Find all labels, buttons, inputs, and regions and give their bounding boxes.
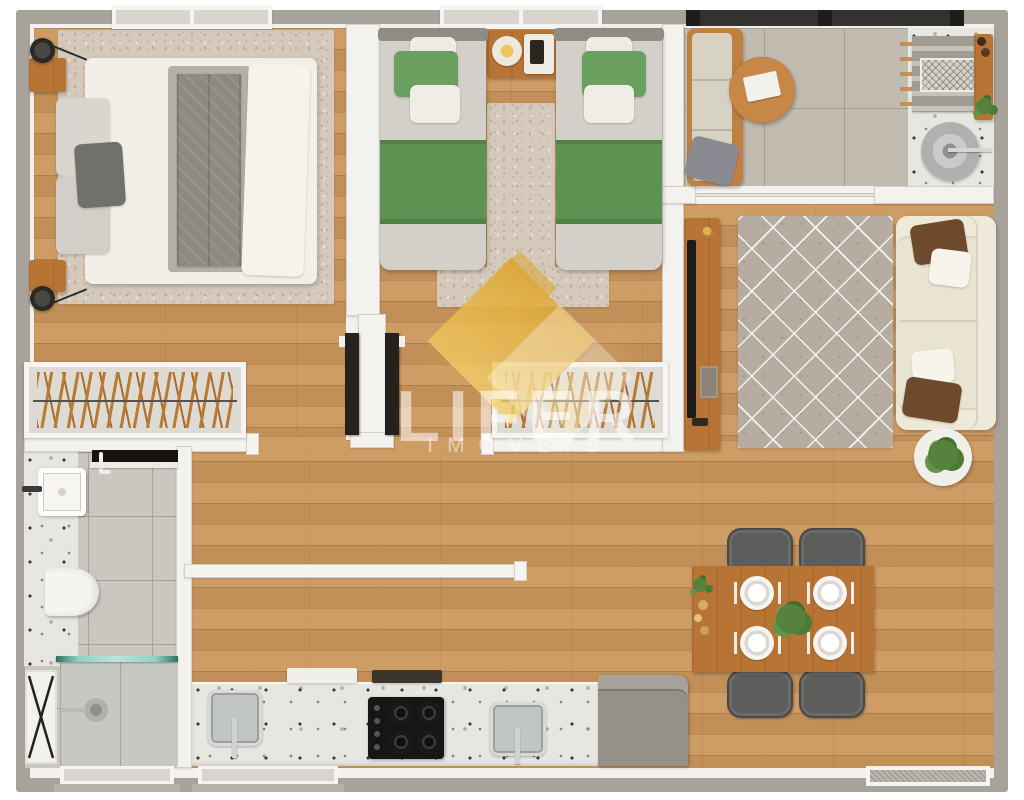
drying-rack-mesh	[920, 58, 980, 92]
refrigerator	[598, 675, 688, 766]
balcony-glass-guardrail	[686, 10, 964, 26]
cutlery	[851, 582, 854, 604]
counter-bottle	[977, 37, 986, 46]
cooktop-knob	[374, 744, 380, 750]
rack-peg	[900, 72, 913, 76]
place-setting	[813, 626, 847, 660]
window-pane	[202, 769, 334, 781]
rack-peg	[900, 102, 913, 106]
wall-balcony-living-right	[874, 186, 994, 204]
rack-peg	[900, 42, 913, 46]
bathroom-door-leaf	[92, 450, 178, 462]
window-sill	[192, 784, 344, 792]
washbasin-faucet	[22, 486, 42, 492]
x-frame-icon	[25, 670, 57, 764]
counter-plant	[976, 98, 992, 114]
counter-bottle	[981, 48, 990, 57]
window-bedroom-twin	[440, 5, 602, 29]
pillow-white	[584, 85, 634, 123]
window-kitchen	[198, 764, 338, 786]
sofa-pillow-brown-bottom	[901, 376, 963, 424]
table-lamp-icon	[492, 36, 522, 66]
door-towel-hook	[99, 470, 111, 474]
shower-floor	[60, 662, 178, 766]
green-blanket	[380, 140, 486, 224]
toilet	[45, 568, 99, 616]
tray-phone	[530, 40, 544, 64]
sofa-seat-divider	[900, 320, 978, 322]
bedroom-twin-rug-column	[487, 103, 555, 273]
wardrobe-rail	[33, 400, 237, 402]
wall-bedrooms-divider	[346, 24, 380, 316]
living-plant	[928, 440, 958, 470]
rack-peg	[900, 87, 913, 91]
sideboard-tray	[700, 366, 718, 398]
cooktop-knob	[374, 705, 380, 711]
door-handle	[399, 336, 405, 347]
gray-throw-blanket	[177, 74, 241, 266]
twin-bed-left	[380, 28, 486, 270]
wall-lamp-bottom-icon	[30, 286, 55, 311]
cutlery	[734, 632, 737, 654]
window-pane	[116, 10, 268, 24]
window-bathroom	[60, 764, 174, 786]
wall-bathroom-right	[176, 446, 192, 768]
door-jamb	[514, 561, 527, 581]
shower-pipe	[62, 708, 86, 712]
pillow-white	[410, 85, 460, 123]
window-sill	[54, 784, 180, 792]
living-room-rug	[738, 216, 893, 448]
place-setting	[740, 576, 774, 610]
cutlery	[807, 632, 810, 654]
shower-glass-partition	[56, 656, 178, 662]
sliding-door-track	[696, 191, 874, 199]
bed-pillow-dark	[74, 141, 126, 208]
window-dining	[866, 766, 990, 786]
cutlery	[778, 632, 781, 654]
rack-peg	[900, 57, 913, 61]
cutlery	[851, 632, 854, 654]
window-pane	[64, 769, 170, 781]
sink-left-faucet	[232, 718, 237, 758]
bathroom-shelf	[90, 462, 178, 468]
laundry-tub-faucet	[948, 148, 992, 152]
cooktop-knob	[374, 718, 380, 724]
centerpiece-plant	[776, 604, 806, 634]
wall-lamp-top-icon	[30, 38, 55, 63]
door-jamb	[246, 433, 259, 455]
burner	[418, 731, 440, 753]
cooktop-knob	[374, 731, 380, 737]
gas-cooktop	[368, 697, 444, 759]
dining-chair	[727, 670, 793, 718]
watermark-tagline: IMÓVEIS	[340, 434, 700, 462]
table-decor	[700, 626, 709, 635]
dining-chair	[799, 670, 865, 718]
door-handle	[339, 336, 345, 347]
guardrail-post	[950, 10, 964, 26]
table-decor	[694, 614, 702, 622]
bed-pillow-white-right	[241, 63, 310, 277]
green-blanket	[556, 140, 662, 224]
place-setting	[740, 626, 774, 660]
washbasin	[38, 468, 86, 516]
shower-drain	[84, 698, 108, 722]
wall-balcony-living-left	[662, 186, 696, 204]
guardrail-post	[818, 10, 832, 26]
window-bedroom-double	[112, 5, 272, 29]
wall-hall-kitchen	[184, 564, 522, 578]
place-setting	[813, 576, 847, 610]
guardrail-post	[686, 10, 700, 26]
basin-drain	[58, 488, 66, 496]
drying-rack	[912, 36, 976, 112]
cutting-board-white	[287, 668, 357, 683]
cutlery	[778, 582, 781, 604]
sink-right-faucet	[515, 728, 520, 764]
window-pane	[870, 770, 986, 782]
nightstand-top	[29, 58, 66, 92]
table-mini-plant	[693, 578, 707, 592]
twin-bed-right	[556, 28, 662, 270]
floor-plan: LIFER IMÓVEIS	[0, 0, 1024, 800]
table-decor	[698, 600, 708, 610]
cutlery	[807, 582, 810, 604]
burner	[390, 702, 412, 724]
cutting-board-dark	[372, 670, 442, 683]
bath-shelf-unit	[25, 670, 57, 764]
window-pane	[444, 10, 598, 24]
burner	[418, 702, 440, 724]
sofa-pillow-white-top	[928, 248, 972, 289]
sideboard-decor	[700, 224, 714, 238]
bedroom-double-doorway	[258, 436, 346, 452]
wardrobe-bedroom-double	[24, 362, 246, 438]
burner	[390, 731, 412, 753]
cutlery	[734, 582, 737, 604]
